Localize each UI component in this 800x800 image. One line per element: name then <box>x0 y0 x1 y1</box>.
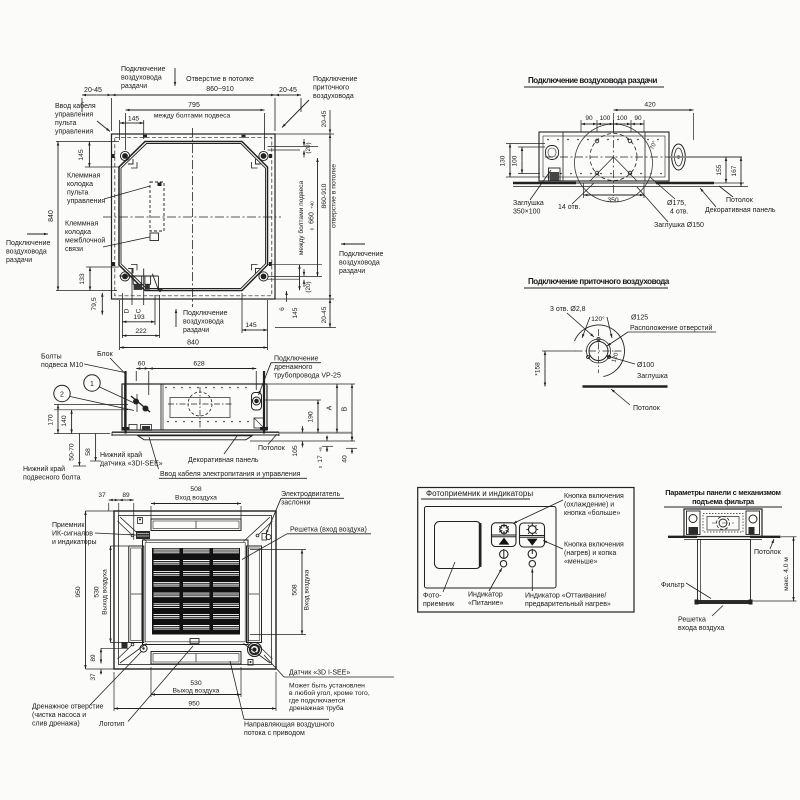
svg-text:50-70: 50-70 <box>69 443 76 461</box>
svg-text:Фотоприемник и индикаторы: Фотоприемник и индикаторы <box>426 489 533 498</box>
svg-text:слив дренажа): слив дренажа) <box>32 721 80 728</box>
svg-text:между болтами подвеса: между болтами подвеса <box>297 181 305 256</box>
svg-text:между болтами подвеса: между болтами подвеса <box>154 112 231 120</box>
svg-text:840: 840 <box>187 340 199 347</box>
svg-text:связи: связи <box>65 246 83 253</box>
svg-text:А: А <box>327 405 334 410</box>
svg-text:Подключение: Подключение <box>274 356 318 363</box>
svg-text:Заглушка: Заглушка <box>513 200 544 207</box>
svg-text:C: C <box>136 308 143 313</box>
svg-text:Ø125: Ø125 <box>631 315 648 322</box>
svg-text:167: 167 <box>731 165 738 176</box>
svg-text:Подключение: Подключение <box>6 240 50 247</box>
svg-text:*158: *158 <box>535 362 542 376</box>
svg-text:макс. 4,0 м: макс. 4,0 м <box>783 557 790 591</box>
svg-text:пульта: пульта <box>55 120 76 127</box>
svg-text:пульта: пульта <box>67 190 88 197</box>
svg-text:190: 190 <box>308 411 315 423</box>
svg-text:350×100: 350×100 <box>513 209 541 216</box>
svg-text:D: D <box>124 308 131 313</box>
svg-text:воздуховода: воздуховода <box>313 93 354 100</box>
svg-text:40: 40 <box>342 455 349 463</box>
svg-text:раздачи: раздачи <box>121 83 147 90</box>
svg-text:Болты: Болты <box>41 354 62 361</box>
svg-text:Вход воздуха: Вход воздуха <box>175 495 217 502</box>
svg-text:предварительный нагрев»: предварительный нагрев» <box>525 600 611 608</box>
svg-text:Датчик «3D I-SEE»: Датчик «3D I-SEE» <box>289 670 350 677</box>
svg-text:Ввод кабеля электропитания и у: Ввод кабеля электропитания и управления <box>160 470 301 478</box>
svg-text:Подключение: Подключение <box>339 251 383 258</box>
svg-text:Потолок: Потолок <box>258 445 286 452</box>
svg-text:дренажного: дренажного <box>274 364 312 371</box>
svg-text:воздуховода: воздуховода <box>339 260 380 267</box>
svg-text:Кнопка включения: Кнопка включения <box>564 493 624 500</box>
svg-text:раздачи: раздачи <box>339 268 365 275</box>
svg-text:«Питание»: «Питание» <box>468 600 504 607</box>
svg-text:Может быть установлен: Может быть установлен <box>289 682 365 690</box>
svg-text:58: 58 <box>85 448 92 456</box>
svg-text:«меньше»: «меньше» <box>564 559 598 566</box>
svg-text:Декоративная панель: Декоративная панель <box>188 457 259 464</box>
svg-text:Фото-: Фото- <box>423 593 442 600</box>
svg-text:Нижний край: Нижний край <box>100 451 142 459</box>
svg-text:кнопка «больше»: кнопка «больше» <box>564 509 621 517</box>
svg-text:155: 155 <box>716 164 723 175</box>
svg-text:управления: управления <box>55 112 93 119</box>
svg-text:508: 508 <box>190 486 202 493</box>
svg-text:Отверстие в потолке: Отверстие в потолке <box>186 76 254 83</box>
svg-text:+6: +6 <box>318 446 323 451</box>
svg-text:530: 530 <box>94 586 101 598</box>
svg-text:Подключение: Подключение <box>313 76 357 83</box>
svg-text:4 отв.: 4 отв. <box>670 209 689 216</box>
svg-text:Индикатор: Индикатор <box>468 592 503 599</box>
svg-text:(охлаждение) и: (охлаждение) и <box>564 502 614 509</box>
svg-text:(чистка насоса и: (чистка насоса и <box>32 712 86 719</box>
svg-text:420: 420 <box>644 102 656 109</box>
svg-text:100: 100 <box>617 115 628 122</box>
svg-text:120°: 120° <box>591 315 605 323</box>
svg-text:Декоративная панель: Декоративная панель <box>705 207 776 214</box>
svg-text:подвеса М10: подвеса М10 <box>41 362 83 369</box>
svg-text:89: 89 <box>122 492 130 499</box>
svg-text:6: 6 <box>279 307 286 311</box>
svg-text:где подключается: где подключается <box>289 698 345 705</box>
svg-text:222: 222 <box>135 328 147 335</box>
svg-text:860~910: 860~910 <box>206 86 234 93</box>
svg-text:и индикаторы: и индикаторы <box>52 539 97 546</box>
svg-text:350: 350 <box>607 197 619 204</box>
svg-text:2: 2 <box>60 391 64 398</box>
svg-text:дренажная труба: дренажная труба <box>289 704 344 712</box>
svg-text:37: 37 <box>98 492 106 499</box>
svg-text:60: 60 <box>138 361 146 368</box>
svg-text:1: 1 <box>90 381 94 388</box>
svg-text:в любой угол, кроме того,: в любой угол, кроме того, <box>289 689 370 697</box>
svg-text:Подключение воздуховода раздач: Подключение воздуховода раздачи <box>528 76 657 85</box>
svg-text:90: 90 <box>634 115 642 122</box>
svg-text:Расположение отверстий: Расположение отверстий <box>630 324 713 332</box>
svg-text:Подключение: Подключение <box>121 66 165 73</box>
svg-text:3 отв. Ø2,8: 3 отв. Ø2,8 <box>550 306 586 313</box>
svg-text:Ø175,: Ø175, <box>667 200 686 207</box>
svg-text:Подключение: Подключение <box>183 310 227 317</box>
svg-text:20-45: 20-45 <box>321 306 328 323</box>
svg-text:193: 193 <box>133 314 145 321</box>
svg-text:Заглушка: Заглушка <box>637 373 668 380</box>
svg-text:100: 100 <box>600 115 611 122</box>
svg-text:подъема фильтра: подъема фильтра <box>692 497 755 506</box>
svg-text:раздачи: раздачи <box>6 257 32 264</box>
svg-text:потока с приводом: потока с приводом <box>244 730 305 737</box>
svg-text:Потолок: Потолок <box>633 405 661 412</box>
svg-text:795: 795 <box>188 102 200 109</box>
svg-text:колодка: колодка <box>65 229 91 236</box>
svg-text:100: 100 <box>512 155 519 166</box>
svg-text:воздуховода: воздуховода <box>6 249 47 256</box>
svg-text:37: 37 <box>90 673 97 681</box>
svg-text:управления: управления <box>67 198 105 205</box>
svg-text:воздуховода: воздуховода <box>183 319 224 326</box>
svg-text:отверстие в потолке: отверстие в потолке <box>331 164 338 228</box>
svg-text:Клеммная: Клеммная <box>65 221 98 228</box>
svg-text:14 отв.: 14 отв. <box>558 204 580 211</box>
svg-text:20-45: 20-45 <box>84 87 102 94</box>
svg-text:860-910: 860-910 <box>321 183 328 208</box>
svg-text:(нагрев) и копка: (нагрев) и копка <box>564 550 616 557</box>
svg-text:660: 660 <box>309 212 316 224</box>
svg-text:заслонки: заслонки <box>281 500 311 507</box>
svg-text:Вход воздуха: Вход воздуха <box>304 569 311 610</box>
svg-text:раздачи: раздачи <box>183 327 209 334</box>
svg-text:Логотип: Логотип <box>99 721 125 728</box>
svg-text:950: 950 <box>75 586 82 598</box>
svg-text:межблочной: межблочной <box>65 237 105 245</box>
svg-text:приточного: приточного <box>313 85 349 92</box>
svg-text:Решетка: Решетка <box>678 617 706 624</box>
svg-text:Ø100: Ø100 <box>637 362 654 369</box>
svg-text:Приемник: Приемник <box>52 522 85 529</box>
svg-text:(20): (20) <box>305 281 312 292</box>
svg-text:приемник: приемник <box>423 601 455 608</box>
svg-text:145: 145 <box>292 307 299 318</box>
svg-text:(20): (20) <box>305 142 312 153</box>
svg-text:628: 628 <box>193 361 205 368</box>
svg-text:145: 145 <box>128 116 140 123</box>
svg-text:Фильтр: Фильтр <box>661 582 685 589</box>
svg-text:950: 950 <box>188 701 200 708</box>
svg-text:530: 530 <box>190 680 202 687</box>
svg-text:130: 130 <box>500 155 507 166</box>
svg-text:входа воздуха: входа воздуха <box>678 625 724 632</box>
svg-text:Параметры панели с механизмом: Параметры панели с механизмом <box>665 488 780 497</box>
svg-text:Блок: Блок <box>97 351 114 358</box>
svg-text:Направляющая воздушного: Направляющая воздушного <box>244 722 334 729</box>
svg-text:20-45: 20-45 <box>279 87 297 94</box>
svg-text:Выход воздуха: Выход воздуха <box>173 688 220 695</box>
svg-text:колодка: колодка <box>67 181 93 188</box>
svg-text:840: 840 <box>48 210 55 222</box>
svg-text:датчика «3DI-SEE»: датчика «3DI-SEE» <box>100 461 163 468</box>
svg-text:ИК-сигналов: ИК-сигналов <box>52 531 93 538</box>
svg-text:145: 145 <box>245 322 257 329</box>
svg-text:Решетка (вход воздуха): Решетка (вход воздуха) <box>290 527 367 534</box>
svg-text:145: 145 <box>78 149 85 161</box>
svg-text:Ввод кабеля: Ввод кабеля <box>55 102 96 110</box>
svg-text:170: 170 <box>48 414 55 426</box>
svg-text:79,5: 79,5 <box>91 297 98 310</box>
svg-text:Клеммная: Клеммная <box>67 173 100 180</box>
svg-text:управления: управления <box>55 129 93 136</box>
svg-text:89: 89 <box>90 654 97 662</box>
svg-text:Потолок: Потолок <box>754 549 782 556</box>
svg-text:20-45: 20-45 <box>321 110 328 127</box>
svg-text:Индикатор «Оттаивание/: Индикатор «Оттаивание/ <box>525 593 606 600</box>
svg-text:воздуховода: воздуховода <box>121 75 162 82</box>
svg-text:140: 140 <box>61 415 68 427</box>
svg-text:90: 90 <box>585 115 593 122</box>
svg-text:В: В <box>342 406 349 411</box>
svg-text:Подключение приточного воздухо: Подключение приточного воздуховода <box>528 277 670 286</box>
svg-text:Нижний край: Нижний край <box>23 465 65 473</box>
svg-text:Выход воздуха: Выход воздуха <box>102 569 109 615</box>
svg-text:Заглушка Ø150: Заглушка Ø150 <box>654 222 704 229</box>
svg-text:508: 508 <box>292 584 299 596</box>
svg-text:Электродвигатель: Электродвигатель <box>281 491 340 498</box>
svg-text:трубопровода VP-25: трубопровода VP-25 <box>274 372 341 380</box>
svg-text:17: 17 <box>317 455 324 463</box>
svg-text:+40: +40 <box>310 201 315 209</box>
svg-text:Потолок: Потолок <box>726 197 754 204</box>
svg-text:133: 133 <box>79 273 86 285</box>
svg-text:подвесного болта: подвесного болта <box>23 474 81 482</box>
svg-text:105: 105 <box>292 445 299 457</box>
svg-text:Кнопка включения: Кнопка включения <box>564 542 624 549</box>
svg-text:Дренажное отверстие: Дренажное отверстие <box>32 704 104 711</box>
